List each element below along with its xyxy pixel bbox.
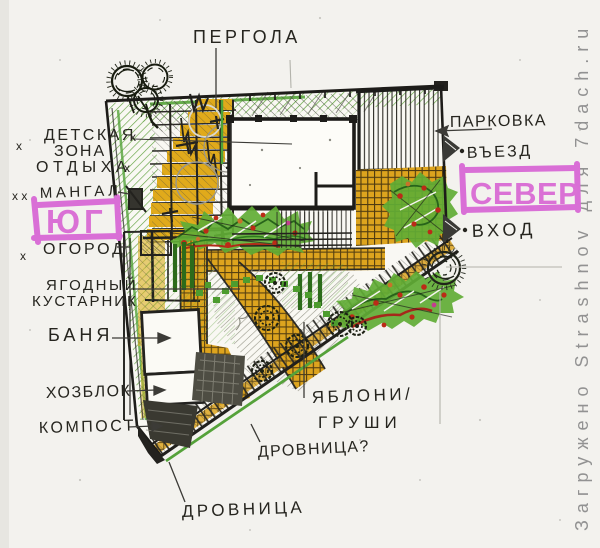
svg-text:ВХОД: ВХОД (471, 219, 536, 241)
svg-text:x: x (16, 139, 22, 153)
svg-text:ПЕРГОЛА: ПЕРГОЛА (193, 27, 301, 47)
svg-text:x: x (20, 249, 26, 263)
svg-text:ЯБЛОНИ/: ЯБЛОНИ/ (311, 384, 413, 407)
svg-text:ЗОНА: ЗОНА (54, 143, 106, 160)
svg-text:КУСТАРНИК: КУСТАРНИК (32, 293, 138, 310)
svg-text:ВЪЕЗД: ВЪЕЗД (467, 143, 533, 162)
svg-text:БАНЯ: БАНЯ (48, 325, 113, 345)
svg-text:КОМПОСТ: КОМПОСТ (39, 417, 137, 437)
svg-text:ХОЗБЛОК: ХОЗБЛОК (46, 383, 132, 402)
svg-text:Загружено Strashnov для 7dach.: Загружено Strashnov для 7dach.ru (572, 22, 592, 531)
svg-text:ГРУШИ: ГРУШИ (318, 413, 402, 432)
svg-text:ЯГОДНЫЙ: ЯГОДНЫЙ (46, 276, 138, 294)
svg-text:ДЕТСКАЯ: ДЕТСКАЯ (44, 127, 136, 144)
svg-text:x x: x x (12, 189, 27, 203)
svg-text:СЕВЕР: СЕВЕР (470, 176, 579, 211)
svg-text:ПАРКОВКА: ПАРКОВКА (450, 112, 547, 131)
svg-text:ОТДЫХА: ОТДЫХА (36, 159, 131, 176)
svg-text:МАНГАЛ: МАНГАЛ (40, 182, 122, 202)
svg-text:ОГОРОД: ОГОРОД (43, 241, 126, 258)
svg-text:ЮГ: ЮГ (46, 203, 107, 240)
